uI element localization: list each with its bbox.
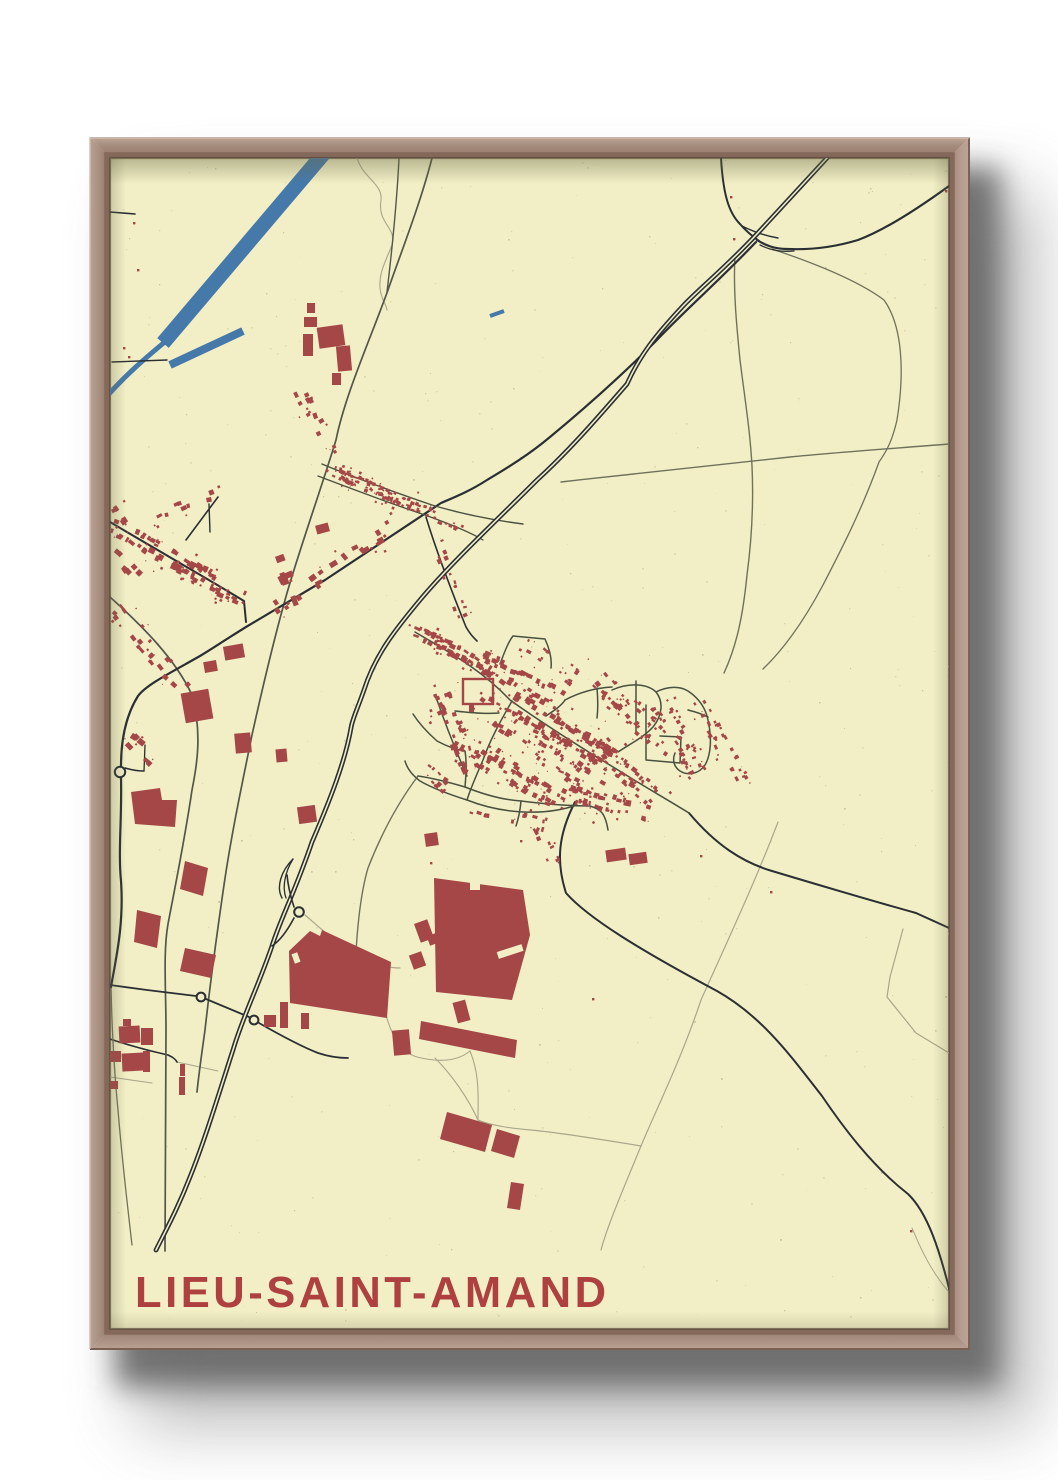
svg-text:LIEU-SAINT-AMAND: LIEU-SAINT-AMAND xyxy=(135,1269,616,1317)
